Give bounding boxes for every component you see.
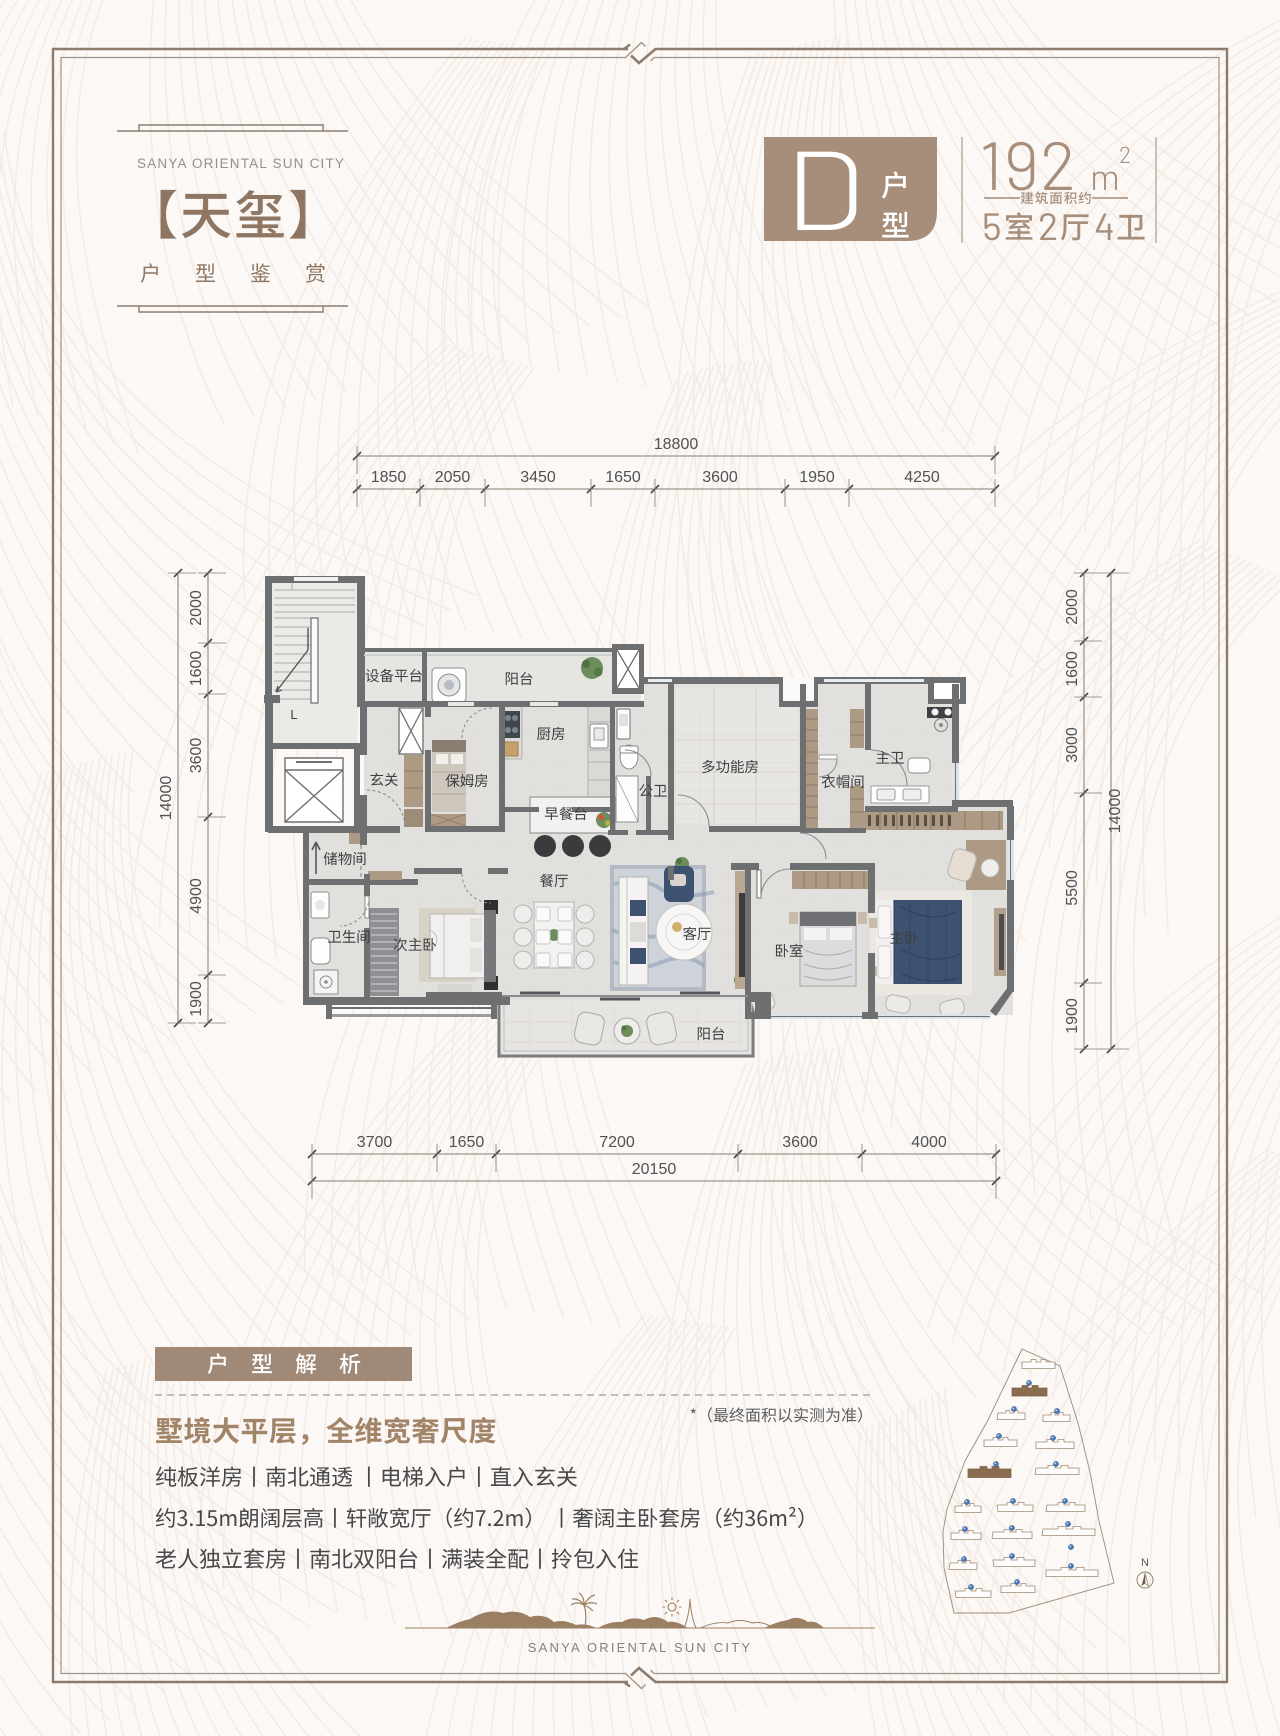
svg-text:2000: 2000 [188,590,205,626]
svg-text:18800: 18800 [654,436,699,453]
svg-text:3600: 3600 [188,738,205,774]
svg-text:2050: 2050 [435,469,471,486]
svg-text:N: N [1141,1557,1149,1569]
svg-text:L: L [290,707,297,722]
svg-text:1600: 1600 [188,651,205,687]
svg-text:3600: 3600 [702,469,738,486]
svg-text:SANYA ORIENTAL SUN CITY: SANYA ORIENTAL SUN CITY [528,1640,752,1655]
svg-text:1600: 1600 [1064,651,1081,687]
svg-text:1850: 1850 [371,469,407,486]
svg-text:14000: 14000 [158,776,175,821]
svg-text:3450: 3450 [520,469,556,486]
svg-text:SANYA ORIENTAL SUN CITY: SANYA ORIENTAL SUN CITY [137,156,345,171]
svg-text:4900: 4900 [188,878,205,914]
svg-text:5500: 5500 [1064,870,1081,906]
svg-text:1950: 1950 [799,469,835,486]
svg-text:1900: 1900 [1064,998,1081,1034]
svg-text:7200: 7200 [599,1134,635,1151]
svg-text:2000: 2000 [1064,589,1081,625]
svg-text:3600: 3600 [782,1134,818,1151]
svg-text:3000: 3000 [1064,727,1081,763]
svg-text:3700: 3700 [357,1134,393,1151]
svg-text:20150: 20150 [632,1161,677,1178]
svg-text:1650: 1650 [605,469,641,486]
svg-text:1900: 1900 [188,981,205,1017]
svg-text:14000: 14000 [1107,789,1124,834]
svg-text:4000: 4000 [911,1134,947,1151]
svg-text:1650: 1650 [449,1134,485,1151]
svg-text:4250: 4250 [904,469,940,486]
